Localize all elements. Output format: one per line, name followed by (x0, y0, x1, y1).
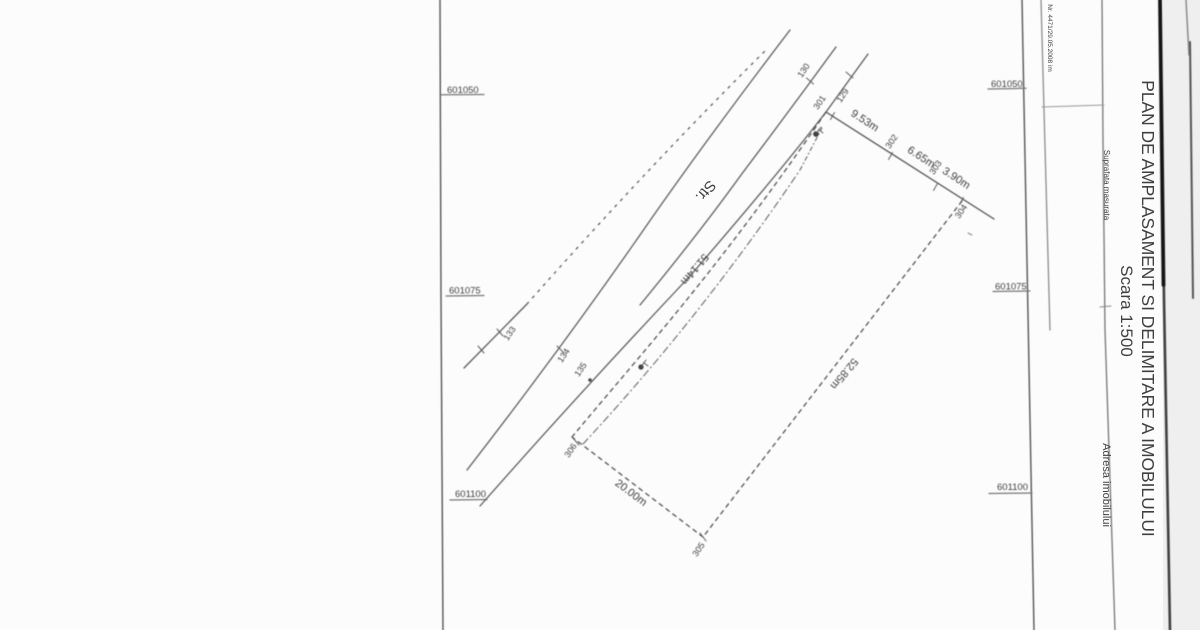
svg-text:Scara 1:500: Scara 1:500 (1117, 265, 1136, 357)
svg-text:Nr. 4471/29.05.2008 im: Nr. 4471/29.05.2008 im (1046, 4, 1053, 72)
svg-text:601075: 601075 (995, 282, 1027, 293)
svg-text:601075: 601075 (449, 286, 481, 297)
svg-text:Suprafata masurata: Suprafata masurata (1102, 150, 1111, 221)
svg-text:601050: 601050 (447, 85, 479, 96)
svg-text:601100: 601100 (997, 482, 1028, 493)
svg-text:PLAN DE AMPLASAMENT SI DELIMIT: PLAN DE AMPLASAMENT SI DELIMITARE A IMOB… (1138, 80, 1158, 536)
svg-text:Adresa imobilului: Adresa imobilului (1100, 443, 1112, 527)
svg-text:601050: 601050 (991, 79, 1023, 90)
svg-text:601100: 601100 (455, 489, 486, 500)
